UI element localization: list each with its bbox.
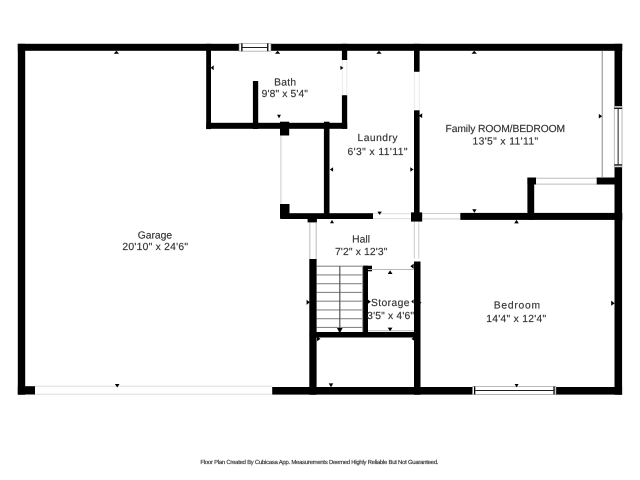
- svg-text:9'8" x 5'4": 9'8" x 5'4": [262, 89, 309, 100]
- svg-text:Laundry: Laundry: [358, 133, 399, 144]
- svg-text:Bedroom: Bedroom: [494, 301, 540, 312]
- svg-text:14'4" x 12'4": 14'4" x 12'4": [486, 314, 546, 325]
- svg-text:Storage: Storage: [371, 298, 410, 309]
- svg-text:20'10" x 24'6": 20'10" x 24'6": [122, 242, 188, 253]
- svg-text:7'2" x 12'3": 7'2" x 12'3": [335, 247, 388, 258]
- svg-text:6'3" x 11'11": 6'3" x 11'11": [348, 147, 408, 158]
- svg-text:Family ROOM/BEDROOM: Family ROOM/BEDROOM: [446, 124, 566, 135]
- svg-text:3'5" x 4'6": 3'5" x 4'6": [367, 311, 414, 322]
- svg-text:Floor Plan Created By Cubicasa: Floor Plan Created By Cubicasa App. Meas…: [200, 459, 438, 466]
- svg-text:Hall: Hall: [352, 235, 370, 246]
- svg-text:Bath: Bath: [274, 77, 296, 88]
- svg-text:13'5" x 11'11": 13'5" x 11'11": [473, 136, 539, 147]
- svg-text:Garage: Garage: [138, 230, 173, 241]
